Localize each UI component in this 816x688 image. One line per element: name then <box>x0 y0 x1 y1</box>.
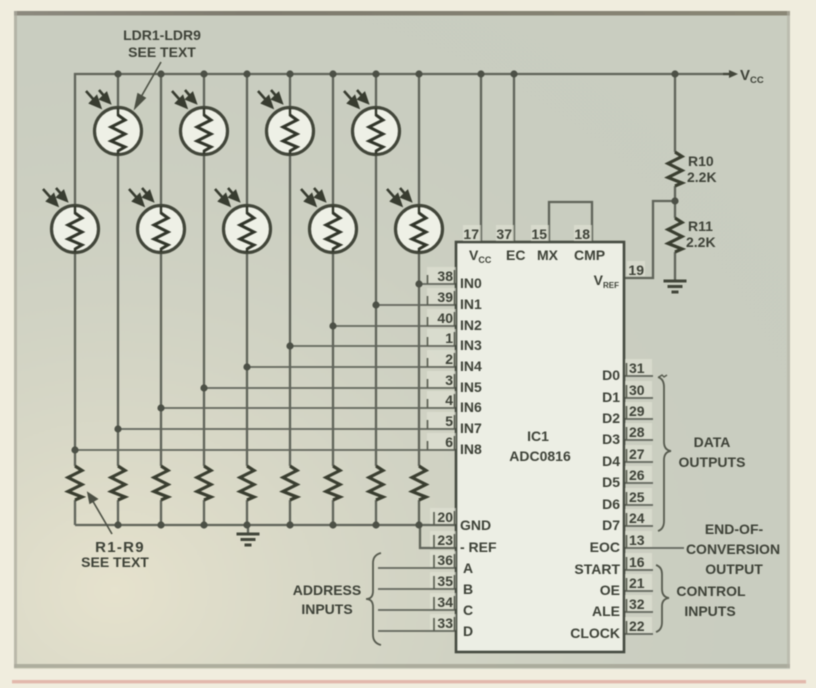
svg-text:24: 24 <box>629 510 645 526</box>
svg-text:IN1: IN1 <box>460 296 482 312</box>
svg-text:- REF: - REF <box>460 539 497 555</box>
svg-text:15: 15 <box>531 226 547 242</box>
svg-text:CONVERSION: CONVERSION <box>686 541 780 557</box>
svg-text:OUTPUTS: OUTPUTS <box>679 454 746 470</box>
svg-text:IC1: IC1 <box>527 428 549 444</box>
svg-text:6: 6 <box>445 434 453 450</box>
svg-text:IN0: IN0 <box>460 275 482 291</box>
svg-text:INPUTS: INPUTS <box>301 601 352 617</box>
svg-text:36: 36 <box>437 552 453 568</box>
svg-text:19: 19 <box>628 262 644 278</box>
svg-text:39: 39 <box>437 289 453 305</box>
svg-text:D0: D0 <box>602 367 620 383</box>
svg-text:4: 4 <box>445 392 453 408</box>
svg-text:35: 35 <box>437 573 453 589</box>
svg-text:IN5: IN5 <box>460 379 482 395</box>
svg-text:END-OF-: END-OF- <box>705 521 764 537</box>
svg-text:23: 23 <box>437 532 453 548</box>
svg-text:D1: D1 <box>602 389 620 405</box>
svg-text:LDR1-LDR9: LDR1-LDR9 <box>123 27 201 43</box>
svg-text:16: 16 <box>629 554 645 570</box>
svg-text:18: 18 <box>574 226 590 242</box>
svg-text:A: A <box>463 560 473 576</box>
svg-text:5: 5 <box>445 413 453 429</box>
svg-text:21: 21 <box>629 575 645 591</box>
svg-text:25: 25 <box>629 489 645 505</box>
svg-text:SEE TEXT: SEE TEXT <box>128 44 196 60</box>
svg-text:EC: EC <box>506 247 525 263</box>
svg-text:D7: D7 <box>602 517 620 533</box>
svg-text:34: 34 <box>437 594 453 610</box>
svg-text:26: 26 <box>629 467 645 483</box>
svg-text:1: 1 <box>445 330 453 346</box>
svg-text:IN7: IN7 <box>460 420 482 436</box>
svg-text:40: 40 <box>437 310 453 326</box>
svg-text:13: 13 <box>629 532 645 548</box>
svg-text:CONTROL: CONTROL <box>676 583 746 599</box>
svg-text:IN2: IN2 <box>460 317 482 333</box>
svg-text:B: B <box>463 581 473 597</box>
svg-text:D4: D4 <box>602 453 620 469</box>
svg-text:31: 31 <box>629 360 645 376</box>
svg-text:OE: OE <box>600 582 620 598</box>
svg-text:32: 32 <box>629 596 645 612</box>
svg-text:D5: D5 <box>602 474 620 490</box>
svg-text:C: C <box>463 602 473 618</box>
svg-text:MX: MX <box>537 247 559 263</box>
svg-text:OUTPUT: OUTPUT <box>705 561 763 577</box>
svg-text:37: 37 <box>496 226 512 242</box>
svg-text:R11: R11 <box>688 218 713 234</box>
svg-text:R10: R10 <box>688 153 714 169</box>
svg-text:ADDRESS: ADDRESS <box>293 582 361 598</box>
svg-text:CMP: CMP <box>574 247 605 263</box>
svg-text:EOC: EOC <box>590 539 620 555</box>
svg-text:D3: D3 <box>602 431 620 447</box>
svg-text:28: 28 <box>629 424 645 440</box>
svg-text:DATA: DATA <box>694 434 731 450</box>
svg-text:17: 17 <box>463 226 479 242</box>
svg-text:IN4: IN4 <box>460 358 482 374</box>
svg-text:20: 20 <box>437 509 453 525</box>
svg-text:D2: D2 <box>602 410 620 426</box>
svg-text:SEE TEXT: SEE TEXT <box>81 554 149 570</box>
svg-text:ALE: ALE <box>592 603 620 619</box>
svg-text:30: 30 <box>629 382 645 398</box>
svg-text:D6: D6 <box>602 496 620 512</box>
svg-text:IN8: IN8 <box>460 441 482 457</box>
svg-text:D: D <box>463 623 473 639</box>
svg-text:2.2K: 2.2K <box>687 169 717 185</box>
svg-text:INPUTS: INPUTS <box>684 603 735 619</box>
svg-text:CLOCK: CLOCK <box>570 625 620 641</box>
svg-text:ADC0816: ADC0816 <box>509 448 571 464</box>
svg-text:IN6: IN6 <box>460 399 482 415</box>
svg-text:2.2K: 2.2K <box>686 234 716 250</box>
svg-text:START: START <box>574 561 620 577</box>
svg-text:38: 38 <box>437 268 453 284</box>
svg-text:GND: GND <box>460 517 491 533</box>
svg-text:33: 33 <box>437 615 453 631</box>
svg-text:2: 2 <box>445 351 453 367</box>
svg-text:29: 29 <box>629 403 645 419</box>
svg-text:27: 27 <box>629 446 645 462</box>
svg-text:IN3: IN3 <box>460 337 482 353</box>
svg-text:22: 22 <box>629 618 645 634</box>
svg-text:3: 3 <box>445 372 453 388</box>
